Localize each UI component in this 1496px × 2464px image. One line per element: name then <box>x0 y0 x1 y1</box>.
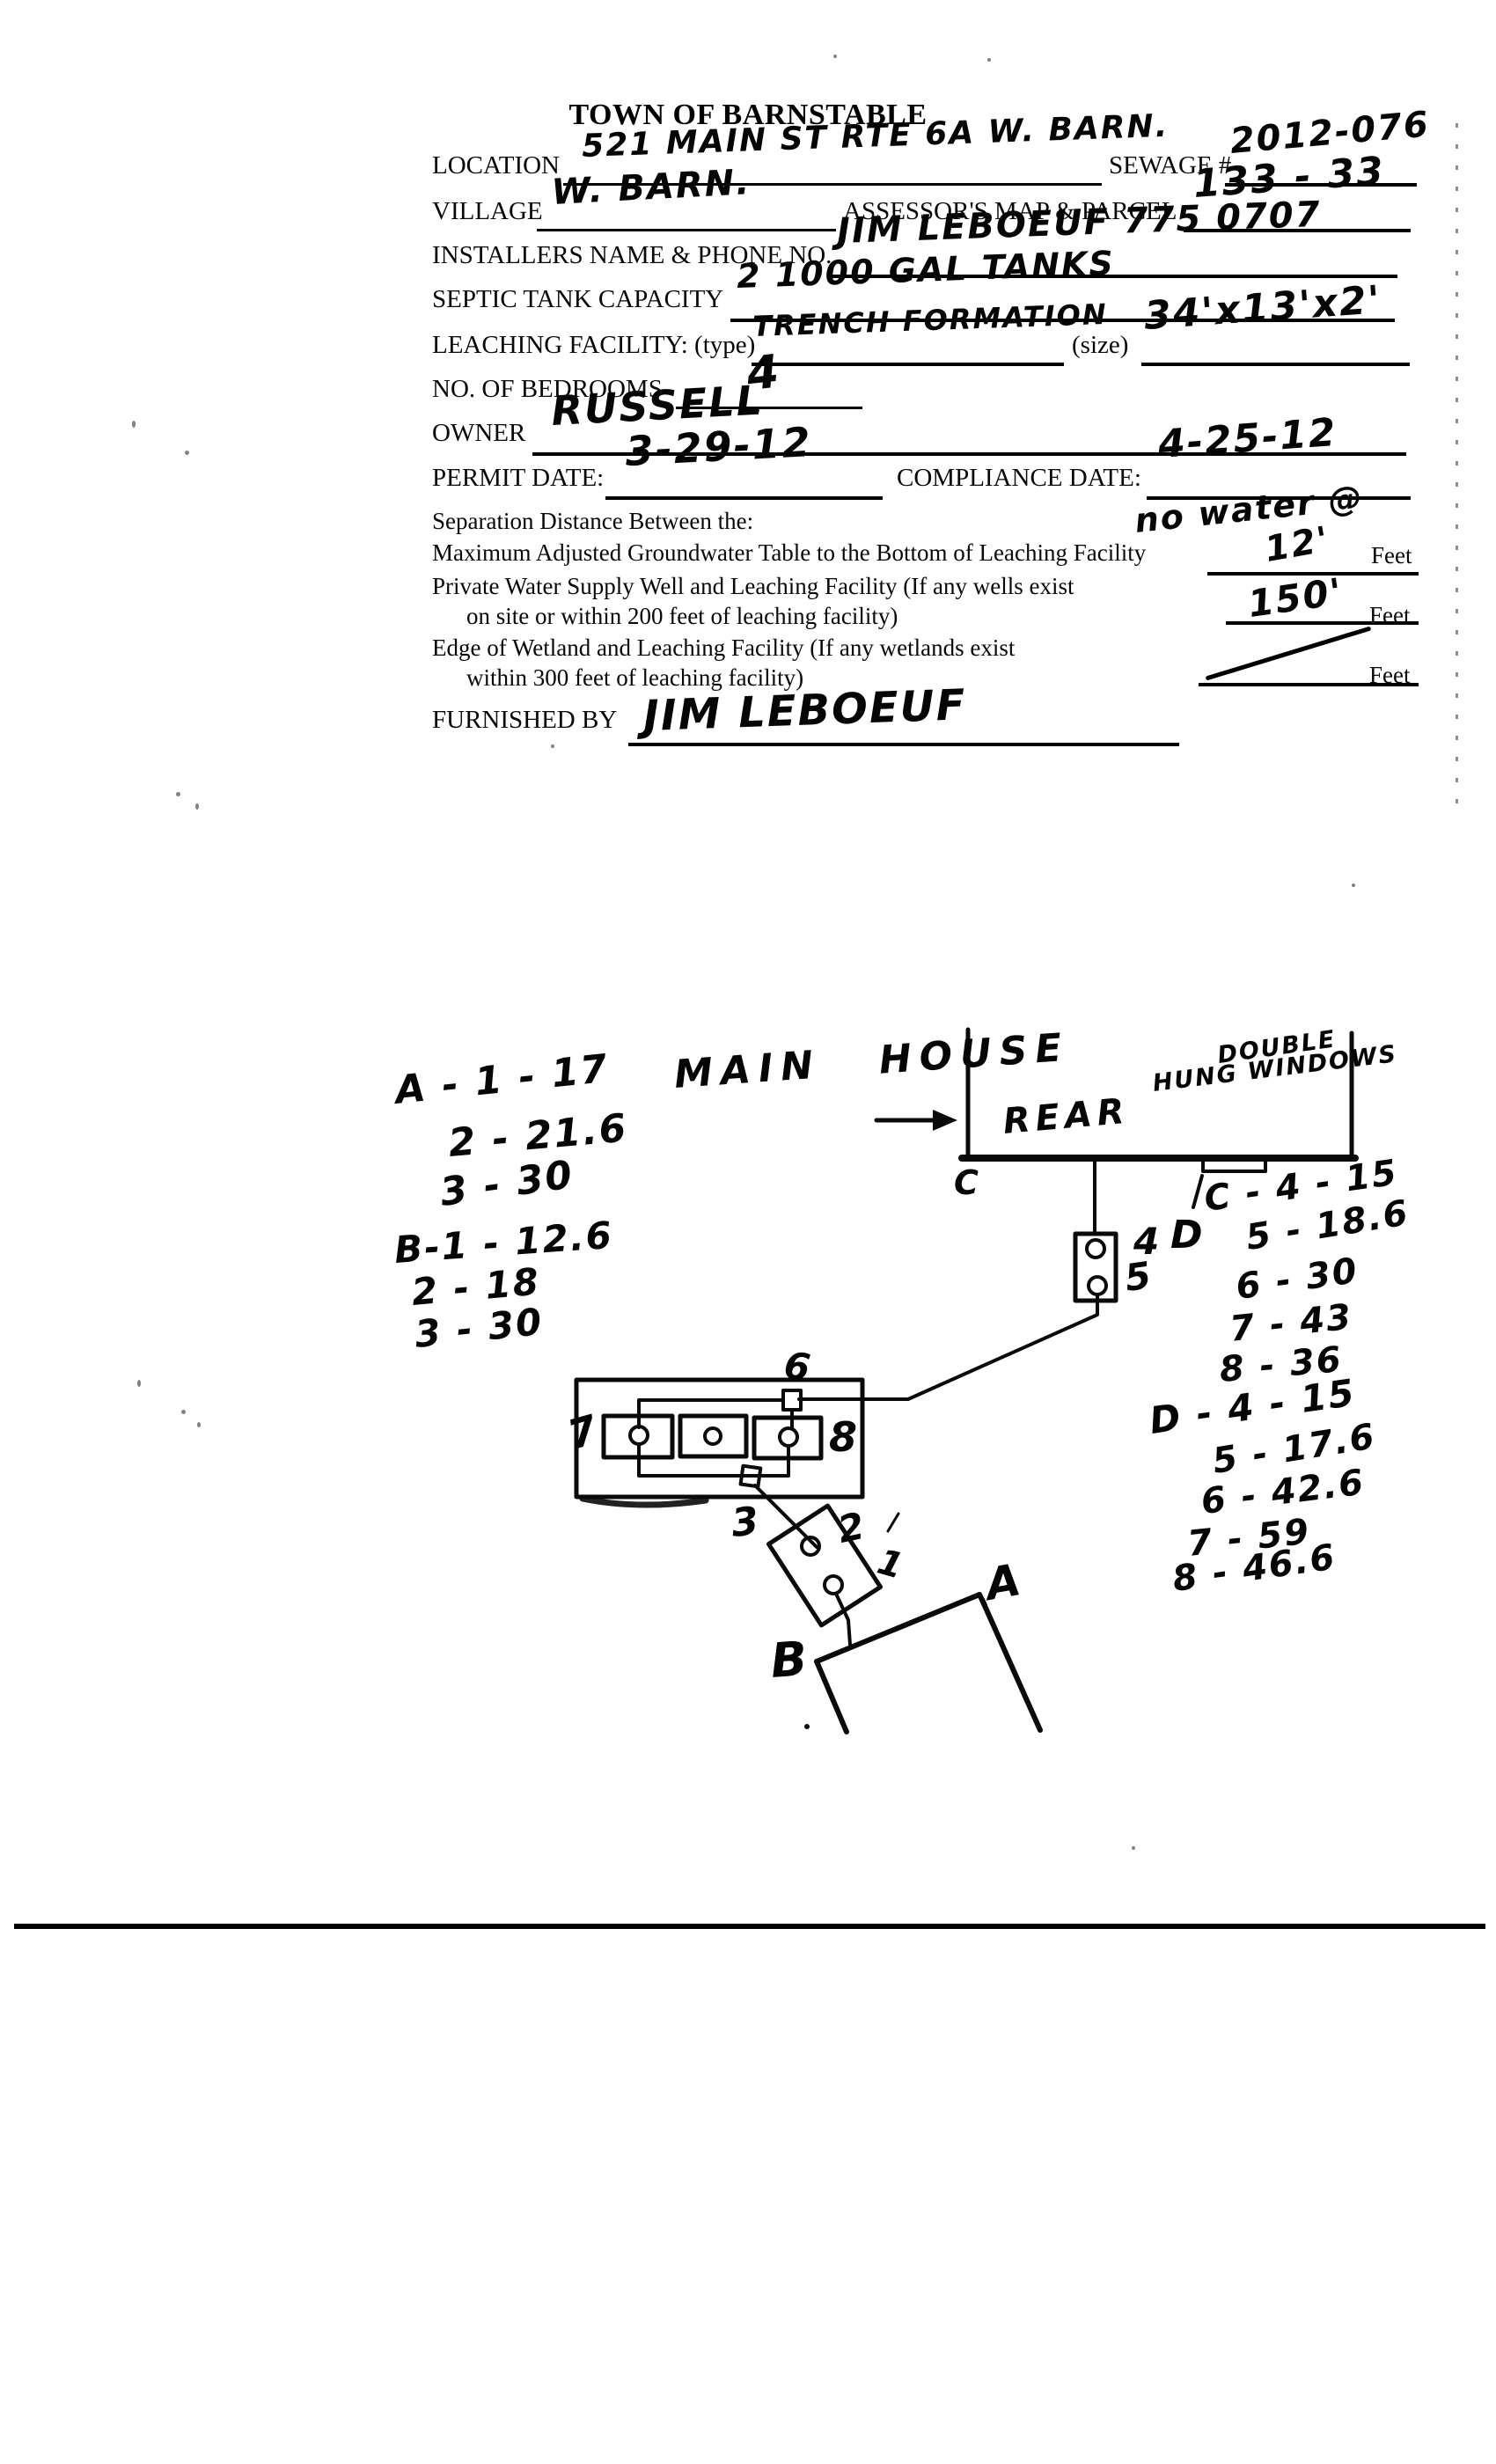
size-value: 34'x13'x2' <box>1142 277 1382 339</box>
no-water-note: no water @ <box>1133 478 1365 540</box>
permit-underline <box>605 496 883 500</box>
chamber-middle <box>680 1416 746 1456</box>
scan-speck <box>551 744 554 748</box>
wetland-label-line1: Edge of Wetland and Leaching Facility (I… <box>432 634 1015 662</box>
scan-speck <box>185 451 189 455</box>
scan-speck <box>197 1422 201 1427</box>
well-feet-label: Feet <box>1369 602 1411 629</box>
scan-margin-line <box>1456 123 1458 810</box>
groundwater-feet-label: Feet <box>1371 542 1412 569</box>
leaching-label: LEACHING FACILITY: (type) <box>432 331 755 360</box>
pipe-to-leach-field <box>799 1294 1097 1399</box>
furnished-label: FURNISHED BY <box>432 706 617 735</box>
wetland-na-slash-mark <box>1206 626 1372 680</box>
page-divider-rule <box>14 1924 1485 1929</box>
groundwater-value: 12' <box>1262 519 1333 570</box>
corner-label-c: C <box>954 1163 980 1202</box>
well-label-line2: on site or within 200 feet of leaching f… <box>466 603 898 630</box>
separation-heading: Separation Distance Between the: <box>432 508 753 535</box>
scan-speck <box>195 803 199 810</box>
well-value: 150' <box>1245 569 1346 626</box>
location-label: LOCATION <box>432 151 560 180</box>
size-label: (size) <box>1072 331 1128 360</box>
furnished-value: JIM LEBOEUF <box>642 680 967 741</box>
compliance-label: COMPLIANCE DATE: <box>897 464 1141 493</box>
compliance-value: 4-25-12 <box>1156 410 1338 467</box>
scan-speck <box>1352 884 1355 887</box>
scan-speck <box>833 55 837 58</box>
scan-speck <box>1132 1846 1135 1850</box>
corner-label-d: D <box>1170 1213 1205 1258</box>
size-underline <box>1141 363 1410 366</box>
village-label: VILLAGE <box>432 197 543 226</box>
scan-speck <box>132 421 136 428</box>
scan-speck <box>137 1380 141 1387</box>
label-1-tick <box>888 1514 898 1531</box>
owner-label: OWNER <box>432 419 525 448</box>
scanned-septic-permit-page: TOWN OF BARNSTABLE LOCATION 521 MAIN ST … <box>0 0 1496 2464</box>
point-label-5: 5 <box>1122 1253 1155 1300</box>
permit-label: PERMIT DATE: <box>432 464 604 493</box>
groundwater-label: Maximum Adjusted Groundwater Table to th… <box>432 539 1146 567</box>
main-house-arrow <box>876 1110 957 1131</box>
scan-speck <box>176 792 180 796</box>
leaching-type-underline <box>752 363 1064 366</box>
village-underline <box>537 229 836 231</box>
well-label-line1: Private Water Supply Well and Leaching F… <box>432 573 1074 600</box>
village-value: W. BARN. <box>551 162 752 213</box>
permit-value: 3-29-12 <box>624 418 813 475</box>
point-label-3: 3 <box>730 1499 763 1546</box>
furnished-underline <box>628 743 1179 746</box>
septic-capacity-label: SEPTIC TANK CAPACITY <box>432 285 723 314</box>
pipe-to-building <box>836 1594 850 1645</box>
d-pointer-line <box>1193 1176 1202 1207</box>
wetland-feet-label: Feet <box>1369 662 1411 689</box>
leaching-type-value: TRENCH FORMATION <box>752 297 1109 343</box>
point-label-8: 8 <box>829 1413 859 1461</box>
distribution-box-4-5 <box>1075 1234 1116 1301</box>
scan-speck <box>181 1410 186 1414</box>
building-label-b: B <box>769 1631 810 1689</box>
scan-speck <box>987 58 991 62</box>
